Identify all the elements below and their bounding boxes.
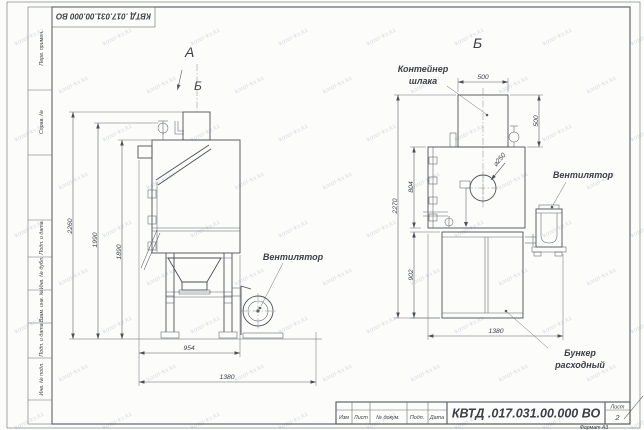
sheet-frame xyxy=(7,2,643,428)
dim-1380-right: 1380 xyxy=(428,234,563,340)
feed-hopper-callout: Бункер расходный xyxy=(505,310,606,370)
view-a-label: А xyxy=(184,44,194,60)
left-view: А Б xyxy=(67,44,324,386)
furnace-body xyxy=(152,140,240,253)
dim-text: 1380 xyxy=(219,374,234,381)
fan-callout-right: Вентилятор xyxy=(551,170,614,208)
rod-arrow xyxy=(464,222,468,227)
stamp-podp-data-2: Подп. и дата xyxy=(39,323,45,356)
stamp-perv-primen: Перв. примен. xyxy=(39,30,45,65)
chimney xyxy=(183,112,210,140)
dim-text: 1890 xyxy=(116,244,123,259)
container-label-line2: шлака xyxy=(409,76,437,86)
dim-text: 1990 xyxy=(92,232,99,247)
dim-text: 902 xyxy=(408,269,415,281)
fan-label-right: Вентилятор xyxy=(553,170,614,180)
stamp-inv-dubl: Инв. № дубл. xyxy=(39,257,45,290)
tb-col-podp: Подп. xyxy=(410,415,424,421)
dim-954: 954 xyxy=(139,160,240,357)
dim-1890: 1890 xyxy=(116,140,152,339)
bracket xyxy=(460,181,470,188)
dim-500-height: 500 xyxy=(510,95,543,147)
hopper-label-line1: Бункер xyxy=(564,348,596,358)
title-block: Изм Лист № докум. Подп. Дата КВТД .017.0… xyxy=(336,402,630,430)
top-designation-box: КВТД .017.031.00.000 ВО xyxy=(52,7,155,27)
view-b-direction-label: Б xyxy=(194,79,202,93)
rear-flange xyxy=(138,146,152,158)
drawing-canvas: Перв. примен. Справ. № Подп. и дата Инв.… xyxy=(0,0,644,430)
fan-side xyxy=(232,286,283,338)
dim-2270: 2270 xyxy=(392,95,456,318)
machine-side-outline xyxy=(135,112,322,339)
tb-sheet-label: Лист xyxy=(610,405,625,411)
container-label-line1: Контейнер xyxy=(398,64,449,74)
valve xyxy=(158,121,168,140)
tb-sheet-number: 2 xyxy=(614,413,620,422)
tb-col-izm: Изм xyxy=(339,415,349,421)
fan-label-left: Вентилятор xyxy=(263,252,324,262)
dim-text: 954 xyxy=(183,345,195,352)
ash-funnel xyxy=(166,258,232,294)
dim-text: 1380 xyxy=(488,328,503,335)
side-stamp-column: Перв. примен. Справ. № Подп. и дата Инв.… xyxy=(39,30,45,395)
stamp-inv-podl: Инв. № подл. xyxy=(39,363,45,396)
view-b-title: Б xyxy=(473,35,482,51)
dim-text: 2270 xyxy=(392,198,399,214)
stamp-sprav-no: Справ. № xyxy=(39,110,45,134)
stamp-vzam-inv: Взам. инв. № xyxy=(39,289,45,322)
door-lever xyxy=(141,230,157,268)
dim-text: 500 xyxy=(477,74,489,81)
dim-text: 804 xyxy=(408,181,415,193)
sloped-hood-line1 xyxy=(156,145,209,180)
tb-designation: КВТД .017.031.00.000 ВО xyxy=(452,407,601,421)
feed-hopper-box xyxy=(442,232,523,318)
drawing-sheet: kotel-kv.kzkotel-kv.kzkotel-kv.kzkotel-k… xyxy=(0,0,644,430)
round-opening xyxy=(466,171,500,205)
dim-902: 902 xyxy=(408,232,440,318)
machine-front-outline xyxy=(423,95,566,318)
sloped-hood-line2 xyxy=(158,149,211,185)
dim-text: 500 xyxy=(533,115,540,127)
valve xyxy=(509,126,519,147)
hopper-label-line2: расходный xyxy=(554,360,605,370)
fan-front xyxy=(525,205,566,256)
pipe-stub xyxy=(450,133,456,147)
tb-col-dokum: № докум. xyxy=(376,415,400,421)
format-note: Формат А3 xyxy=(580,425,608,430)
dim-text: 2260 xyxy=(67,218,74,234)
right-view: Б xyxy=(392,35,614,370)
slag-container-callout: Контейнер шлака xyxy=(398,64,489,116)
dim-dia-250: ⌀250 xyxy=(491,152,508,180)
view-b-direction-arrow xyxy=(178,70,183,90)
dim-1380-left: 1380 xyxy=(139,332,316,386)
top-designation-text: КВТД .017.031.00.000 ВО xyxy=(55,12,151,21)
tb-col-data: Дата xyxy=(429,415,444,421)
dim-text: ⌀250 xyxy=(492,152,507,168)
stamp-podp-data-1: Подп. и дата xyxy=(39,221,45,254)
dim-1990: 1990 xyxy=(92,123,158,339)
tb-col-list: Лист xyxy=(353,415,368,421)
